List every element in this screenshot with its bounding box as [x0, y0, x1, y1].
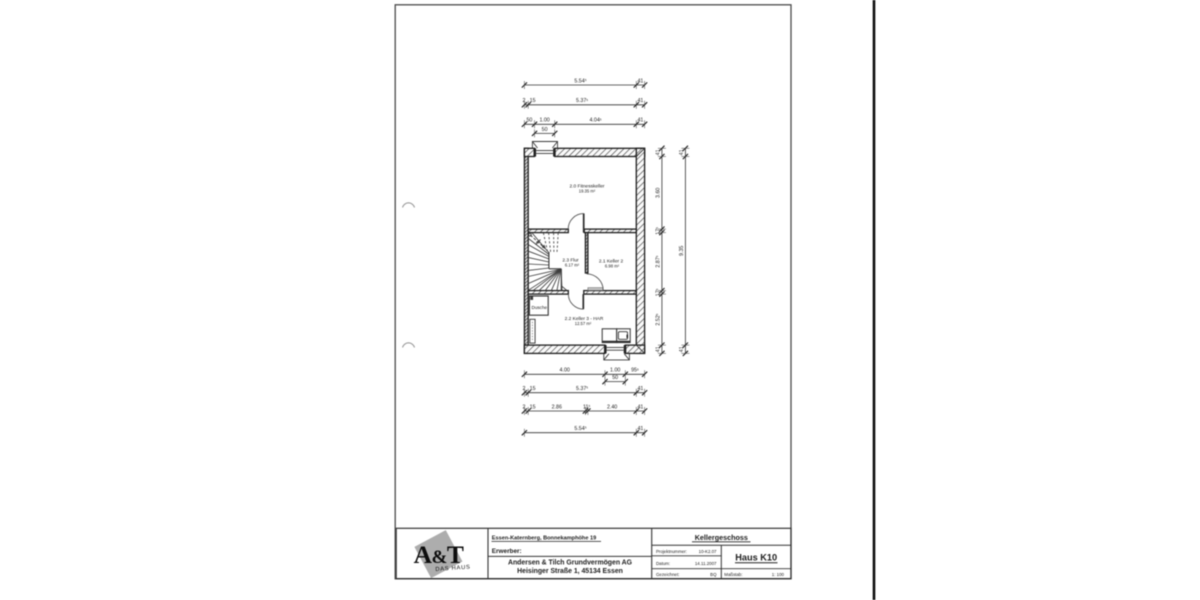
- svg-text:5.545: 5.545: [574, 78, 586, 84]
- svg-text:2: 2: [523, 98, 526, 104]
- svg-text:5.545: 5.545: [574, 426, 586, 432]
- svg-text:1.00: 1.00: [539, 118, 549, 124]
- svg-text:41: 41: [637, 118, 643, 124]
- svg-text:6.17 m²: 6.17 m²: [565, 263, 580, 268]
- svg-text:Gezeichnet:: Gezeichnet:: [656, 572, 679, 577]
- svg-text:1.00: 1.00: [610, 368, 620, 374]
- svg-text:41: 41: [637, 78, 643, 84]
- svg-text:2.40: 2.40: [607, 404, 617, 410]
- svg-text:5.375: 5.375: [576, 98, 588, 104]
- svg-text:Heisinger Straße 1, 45134 Esse: Heisinger Straße 1, 45134 Essen: [517, 568, 623, 575]
- svg-text:19.35 m²: 19.35 m²: [579, 188, 596, 193]
- svg-text:Datum:: Datum:: [656, 561, 670, 566]
- svg-text:4.00: 4.00: [560, 368, 570, 374]
- svg-text:5.375: 5.375: [576, 386, 588, 392]
- svg-text:15: 15: [530, 404, 536, 410]
- svg-text:2.875: 2.875: [655, 255, 661, 267]
- svg-text:41: 41: [637, 426, 643, 432]
- svg-text:Kellergeschoss: Kellergeschoss: [695, 533, 748, 542]
- svg-text:50: 50: [612, 375, 618, 381]
- svg-text:41: 41: [637, 386, 643, 392]
- svg-text:2: 2: [523, 386, 526, 392]
- svg-text:41: 41: [679, 346, 685, 352]
- svg-text:175: 175: [655, 288, 661, 296]
- svg-text:9.35: 9.35: [679, 246, 685, 256]
- svg-text:50: 50: [542, 127, 548, 133]
- svg-text:Erwerber:: Erwerber:: [492, 548, 522, 555]
- svg-text:10-K2.07: 10-K2.07: [699, 549, 717, 554]
- svg-text:6.98 m²: 6.98 m²: [605, 264, 620, 269]
- svg-text:955: 955: [631, 367, 639, 373]
- svg-text:14.11.2007: 14.11.2007: [695, 561, 717, 566]
- svg-text:2: 2: [523, 404, 526, 410]
- svg-text:2.86: 2.86: [552, 404, 562, 410]
- svg-text:2.525: 2.525: [655, 313, 661, 325]
- svg-text:41: 41: [679, 149, 685, 155]
- svg-text:41: 41: [655, 149, 661, 155]
- svg-text:15: 15: [530, 98, 536, 104]
- svg-text:Maßstab:: Maßstab:: [724, 572, 742, 577]
- svg-text:41: 41: [637, 404, 643, 410]
- svg-text:41: 41: [637, 98, 643, 104]
- svg-text:12.57 m²: 12.57 m²: [575, 321, 592, 326]
- svg-text:Essen-Katernberg, Bonnekamphöh: Essen-Katernberg, Bonnekamphöhe 19: [492, 535, 596, 541]
- svg-text:BQ: BQ: [710, 572, 717, 577]
- svg-text:175: 175: [655, 227, 661, 235]
- svg-text:1: 100: 1: 100: [772, 572, 785, 577]
- svg-text:Haus K10: Haus K10: [735, 552, 777, 562]
- svg-text:DAS HAUS: DAS HAUS: [435, 565, 471, 573]
- svg-text:15: 15: [530, 386, 536, 392]
- svg-text:Andersen & Tilch Grundvermögen: Andersen & Tilch Grundvermögen AG: [508, 559, 632, 566]
- svg-text:Dusche: Dusche: [532, 305, 548, 310]
- svg-text:41: 41: [655, 346, 661, 352]
- svg-text:Projektnummer:: Projektnummer:: [656, 549, 687, 554]
- svg-text:50: 50: [526, 118, 532, 124]
- svg-text:4.045: 4.045: [589, 117, 601, 123]
- svg-text:3.60: 3.60: [655, 188, 661, 198]
